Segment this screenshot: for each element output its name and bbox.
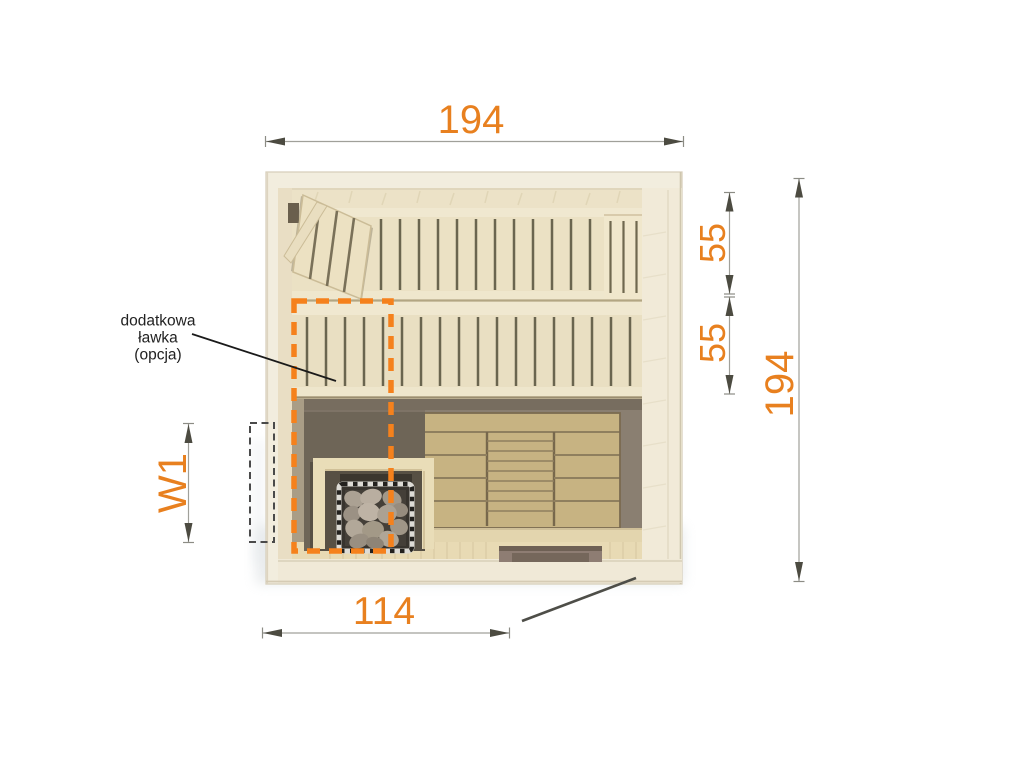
svg-text:ławka: ławka [138, 330, 178, 347]
svg-text:(opcja): (opcja) [134, 347, 181, 364]
svg-text:194: 194 [438, 98, 505, 142]
svg-text:55: 55 [692, 323, 733, 363]
svg-text:194: 194 [758, 351, 802, 418]
svg-text:dodatkowa: dodatkowa [121, 313, 196, 330]
svg-text:114: 114 [353, 590, 415, 633]
svg-text:W1: W1 [151, 453, 195, 513]
svg-text:55: 55 [692, 223, 733, 263]
